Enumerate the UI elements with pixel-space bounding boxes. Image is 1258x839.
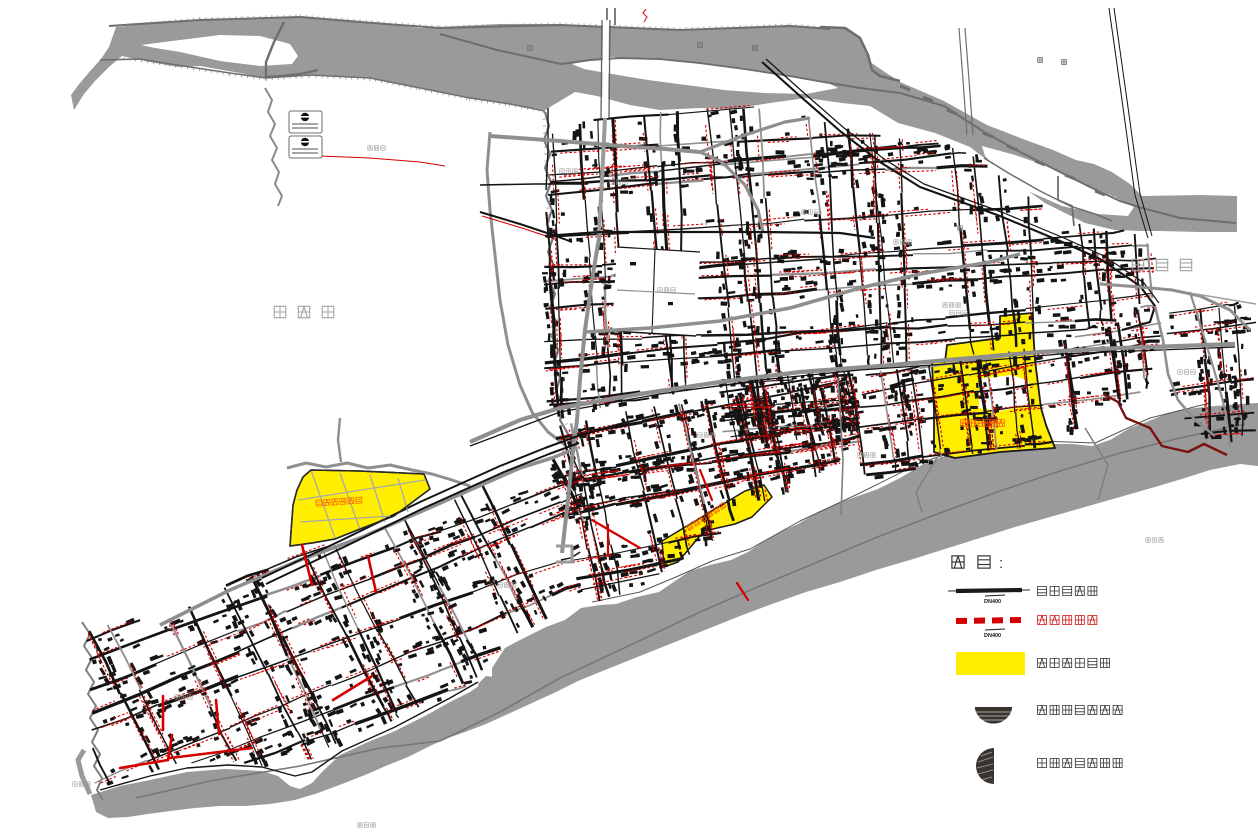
svg-text:DN400: DN400 <box>984 599 1001 605</box>
svg-text::: : <box>999 555 1003 572</box>
svg-text:DN400: DN400 <box>984 633 1001 639</box>
